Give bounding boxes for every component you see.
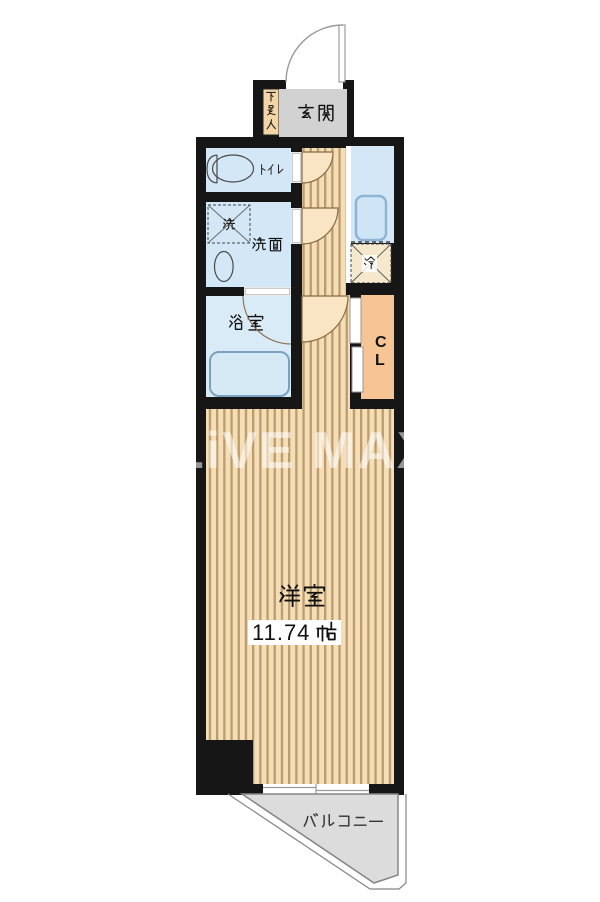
svg-text:11.74: 11.74 (252, 620, 310, 645)
svg-text:LiVE MAX: LiVE MAX (172, 422, 434, 480)
svg-text:L: L (375, 352, 385, 369)
svg-text:C: C (375, 334, 387, 351)
